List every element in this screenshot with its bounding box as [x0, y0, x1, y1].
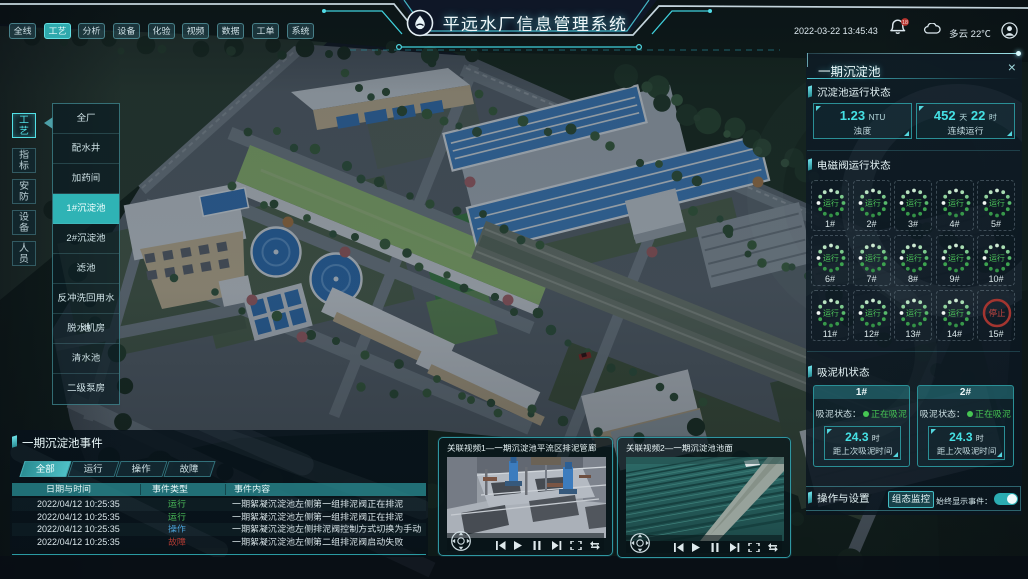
- svg-text:运行: 运行: [947, 199, 963, 208]
- svg-text:运行: 运行: [823, 199, 839, 208]
- svg-text:运行: 运行: [864, 309, 880, 318]
- svg-text:运行: 运行: [947, 309, 963, 318]
- svg-text:运行: 运行: [864, 254, 880, 263]
- svg-text:运行: 运行: [947, 254, 963, 263]
- svg-text:18: 18: [902, 20, 908, 26]
- svg-text:运行: 运行: [864, 199, 880, 208]
- svg-text:运行: 运行: [989, 199, 1005, 208]
- svg-text:运行: 运行: [823, 309, 839, 318]
- svg-text:运行: 运行: [823, 254, 839, 263]
- svg-text:运行: 运行: [906, 254, 922, 263]
- svg-text:运行: 运行: [906, 199, 922, 208]
- svg-text:运行: 运行: [906, 309, 922, 318]
- svg-text:运行: 运行: [989, 254, 1005, 263]
- svg-text:停止: 停止: [988, 308, 1005, 318]
